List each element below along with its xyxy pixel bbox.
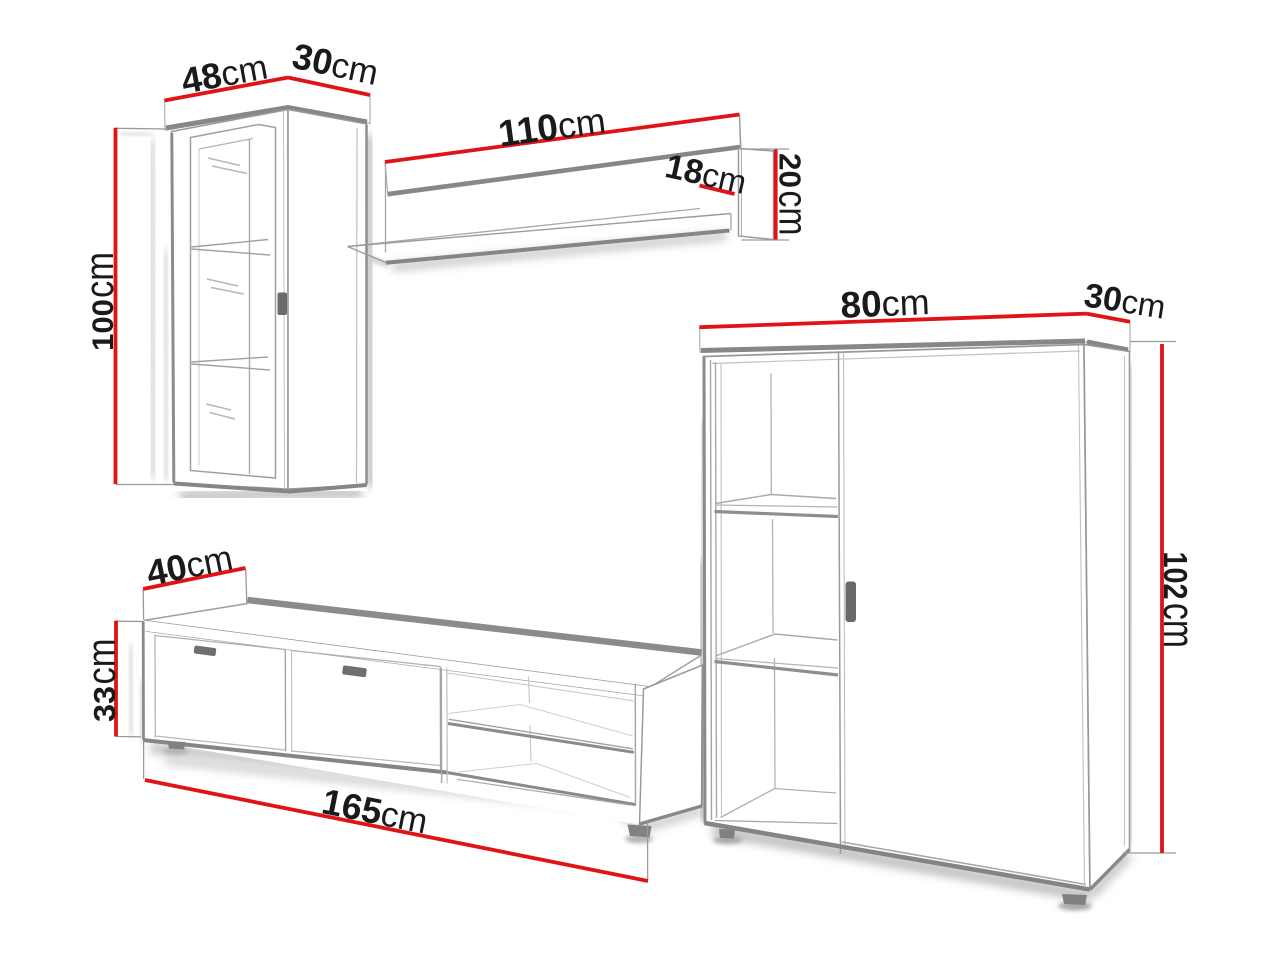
svg-text:102: 102 [1157,552,1194,600]
svg-text:33: 33 [87,686,122,722]
svg-text:80cm: 80cm [840,281,931,326]
svg-text:cm: cm [1154,603,1203,648]
svg-text:100: 100 [87,299,120,351]
svg-text:20: 20 [773,153,808,188]
svg-text:cm: cm [80,639,124,685]
svg-text:cm: cm [78,252,122,298]
svg-text:cm: cm [771,191,815,236]
